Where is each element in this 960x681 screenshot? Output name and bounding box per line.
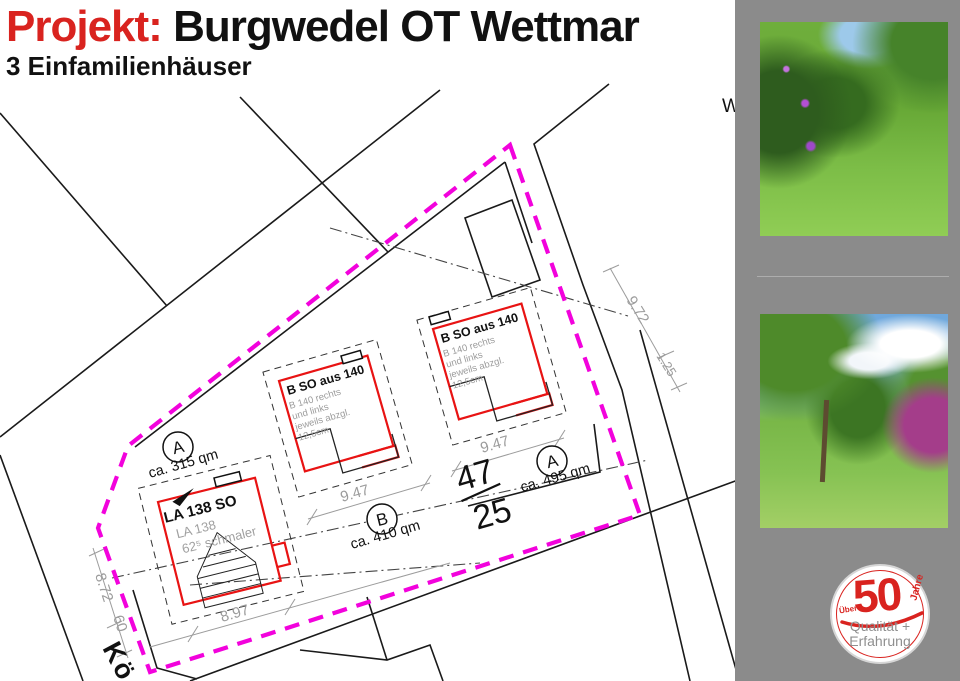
page-title: Projekt: Burgwedel OT Wettmar <box>6 2 639 53</box>
project-name: Burgwedel OT Wettmar <box>173 2 639 51</box>
quality-badge: Über 50 Jahre Qualität + Erfahrung <box>830 564 930 664</box>
parcel-number: 47 25 <box>451 450 516 539</box>
dimension-label-8-97: 8.97 <box>218 601 251 625</box>
dimension-label-60: 60 <box>109 613 130 634</box>
building-outline-red-step <box>513 393 553 415</box>
sidebar: Über 50 Jahre Qualität + Erfahrung <box>735 0 960 681</box>
page-subtitle: 3 Einfamilienhäuser <box>6 53 639 80</box>
slide: Projekt: Burgwedel OT Wettmar 3 Einfamil… <box>0 0 960 681</box>
photo-divider <box>757 276 949 277</box>
street-label: Kö <box>97 637 142 681</box>
photo-garden-meadow <box>760 22 948 236</box>
dimension-label-8-72: 8.72 <box>91 571 116 604</box>
project-label: Projekt: <box>6 2 162 51</box>
badge-quality-line: Qualität + <box>832 618 928 634</box>
tree-trunk <box>820 400 829 482</box>
parcel-boundary-magenta <box>98 145 640 672</box>
header: Projekt: Burgwedel OT Wettmar 3 Einfamil… <box>6 2 639 80</box>
existing-building-outline <box>465 200 540 297</box>
building-right: B SO aus 140 B 140 rechts und links jewe… <box>417 288 566 445</box>
parcel-number-bottom: 25 <box>469 491 516 538</box>
dimension-label-9-72: 9.72 <box>623 293 653 327</box>
badge-experience-line: Erfahrung <box>832 633 928 649</box>
photo-meadow-tree <box>760 314 948 528</box>
building-outline-red-step <box>359 445 399 467</box>
dimension-label-1-25: 1.25 <box>653 350 679 379</box>
building-middle: B SO aus 140 B 140 rechts und links jewe… <box>263 340 412 497</box>
